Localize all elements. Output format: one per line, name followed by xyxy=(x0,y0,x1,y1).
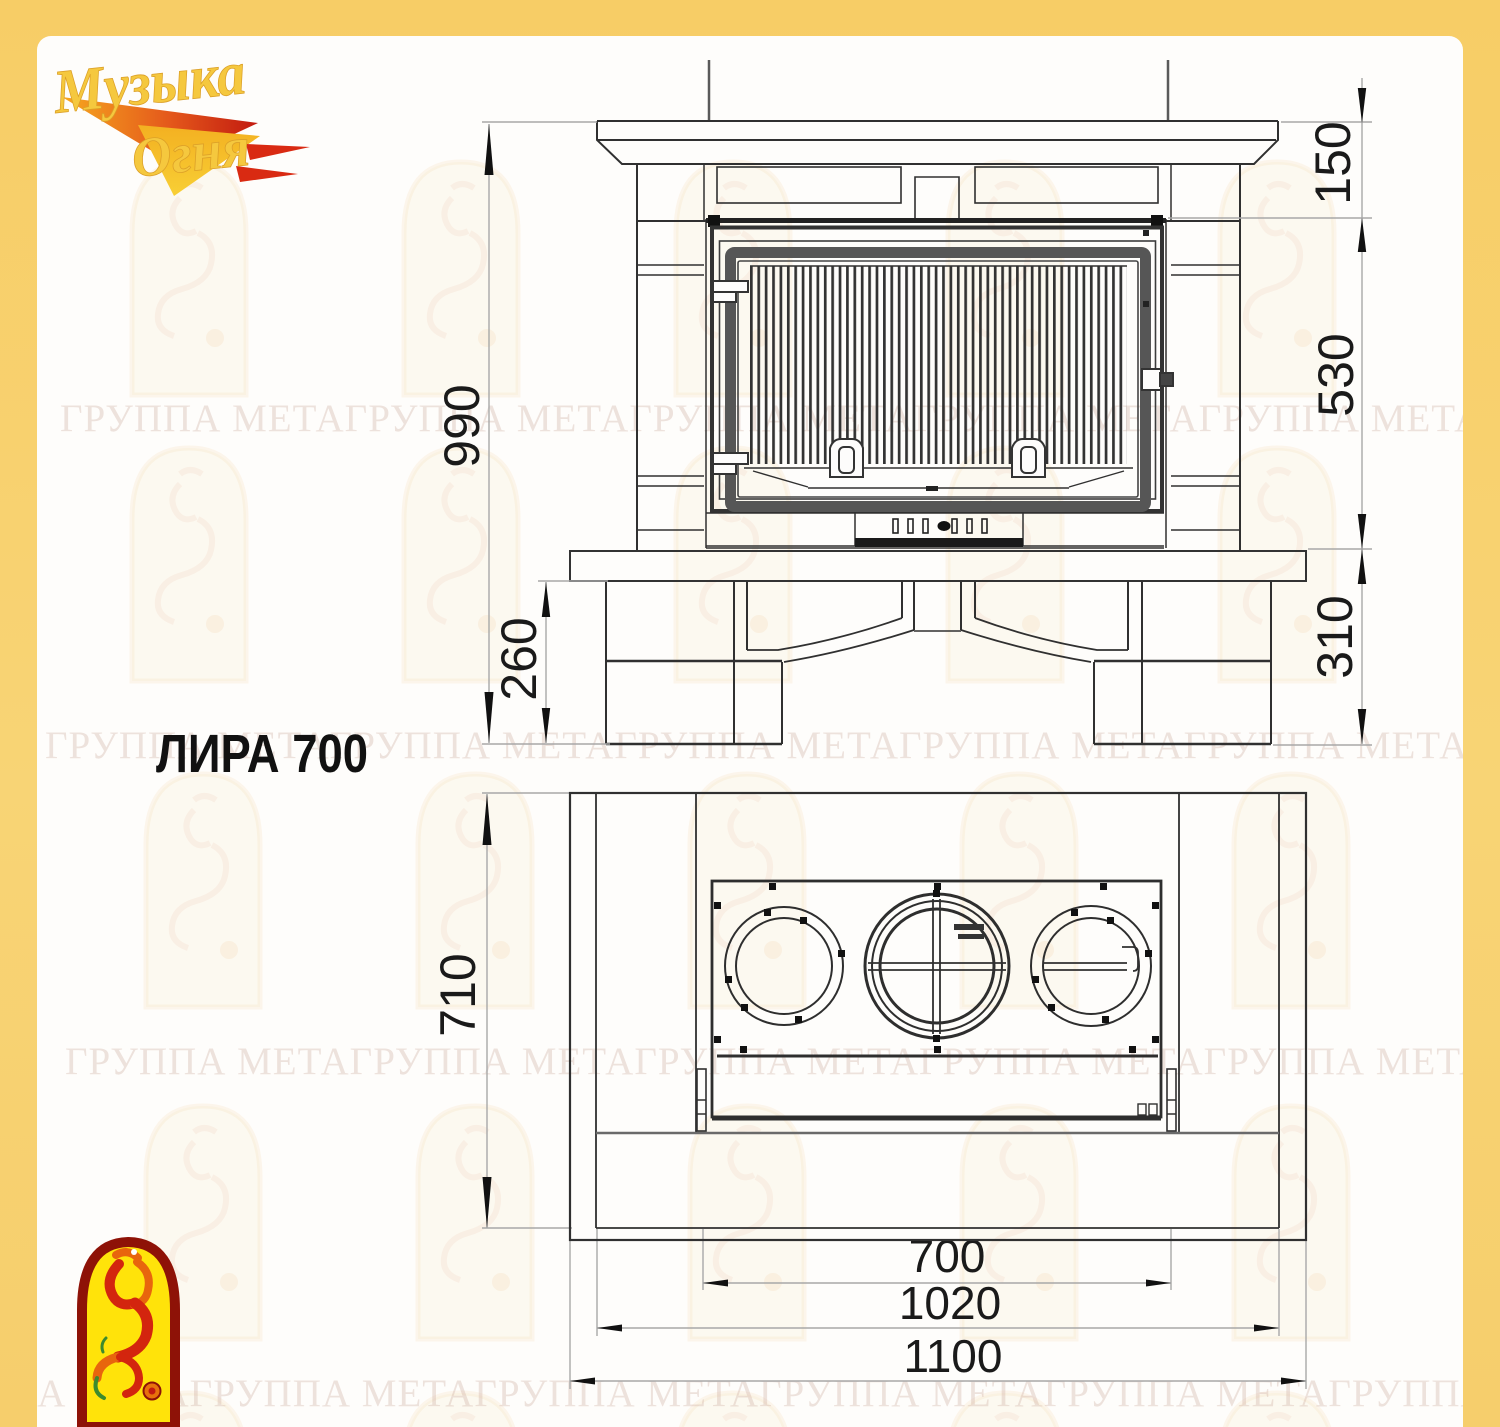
svg-text:530: 530 xyxy=(1308,333,1364,416)
svg-text:Огня: Огня xyxy=(129,116,253,190)
svg-text:ЛИРА 700: ЛИРА 700 xyxy=(156,724,368,784)
svg-text:150: 150 xyxy=(1305,121,1361,204)
svg-text:1020: 1020 xyxy=(899,1277,1001,1329)
svg-text:1100: 1100 xyxy=(904,1330,1003,1382)
svg-text:Музыка: Музыка xyxy=(49,39,248,127)
svg-text:990: 990 xyxy=(434,384,490,467)
svg-text:700: 700 xyxy=(909,1230,986,1282)
svg-text:260: 260 xyxy=(491,617,547,700)
svg-text:710: 710 xyxy=(430,953,486,1036)
svg-text:310: 310 xyxy=(1307,595,1363,678)
